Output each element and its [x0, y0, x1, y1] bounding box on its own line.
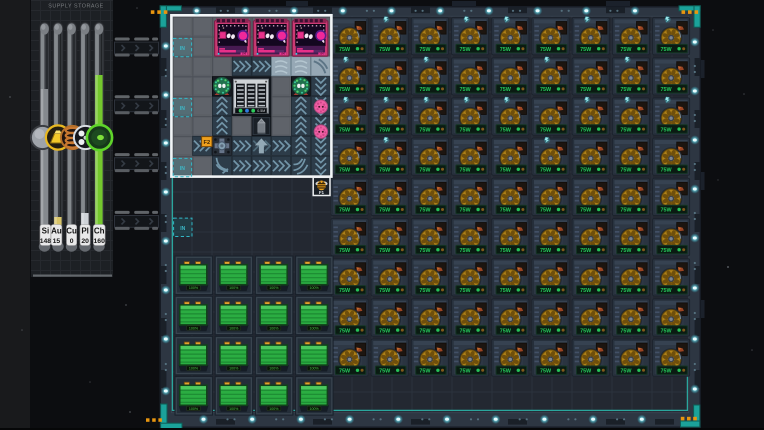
svg-text:15: 15: [53, 238, 61, 245]
svg-text:Ch: Ch: [94, 227, 105, 236]
svg-text:Si: Si: [42, 227, 50, 236]
svg-text:F2: F2: [204, 140, 211, 146]
svg-text:160: 160: [94, 238, 106, 245]
svg-text:SUPPLY STORAGE: SUPPLY STORAGE: [48, 4, 104, 10]
svg-text:Au: Au: [51, 227, 62, 236]
svg-text:148: 148: [40, 238, 52, 245]
svg-text:Cu: Cu: [66, 227, 77, 236]
svg-text:0: 0: [70, 238, 74, 245]
svg-text:20: 20: [81, 238, 89, 245]
svg-text:Pl: Pl: [81, 227, 89, 236]
